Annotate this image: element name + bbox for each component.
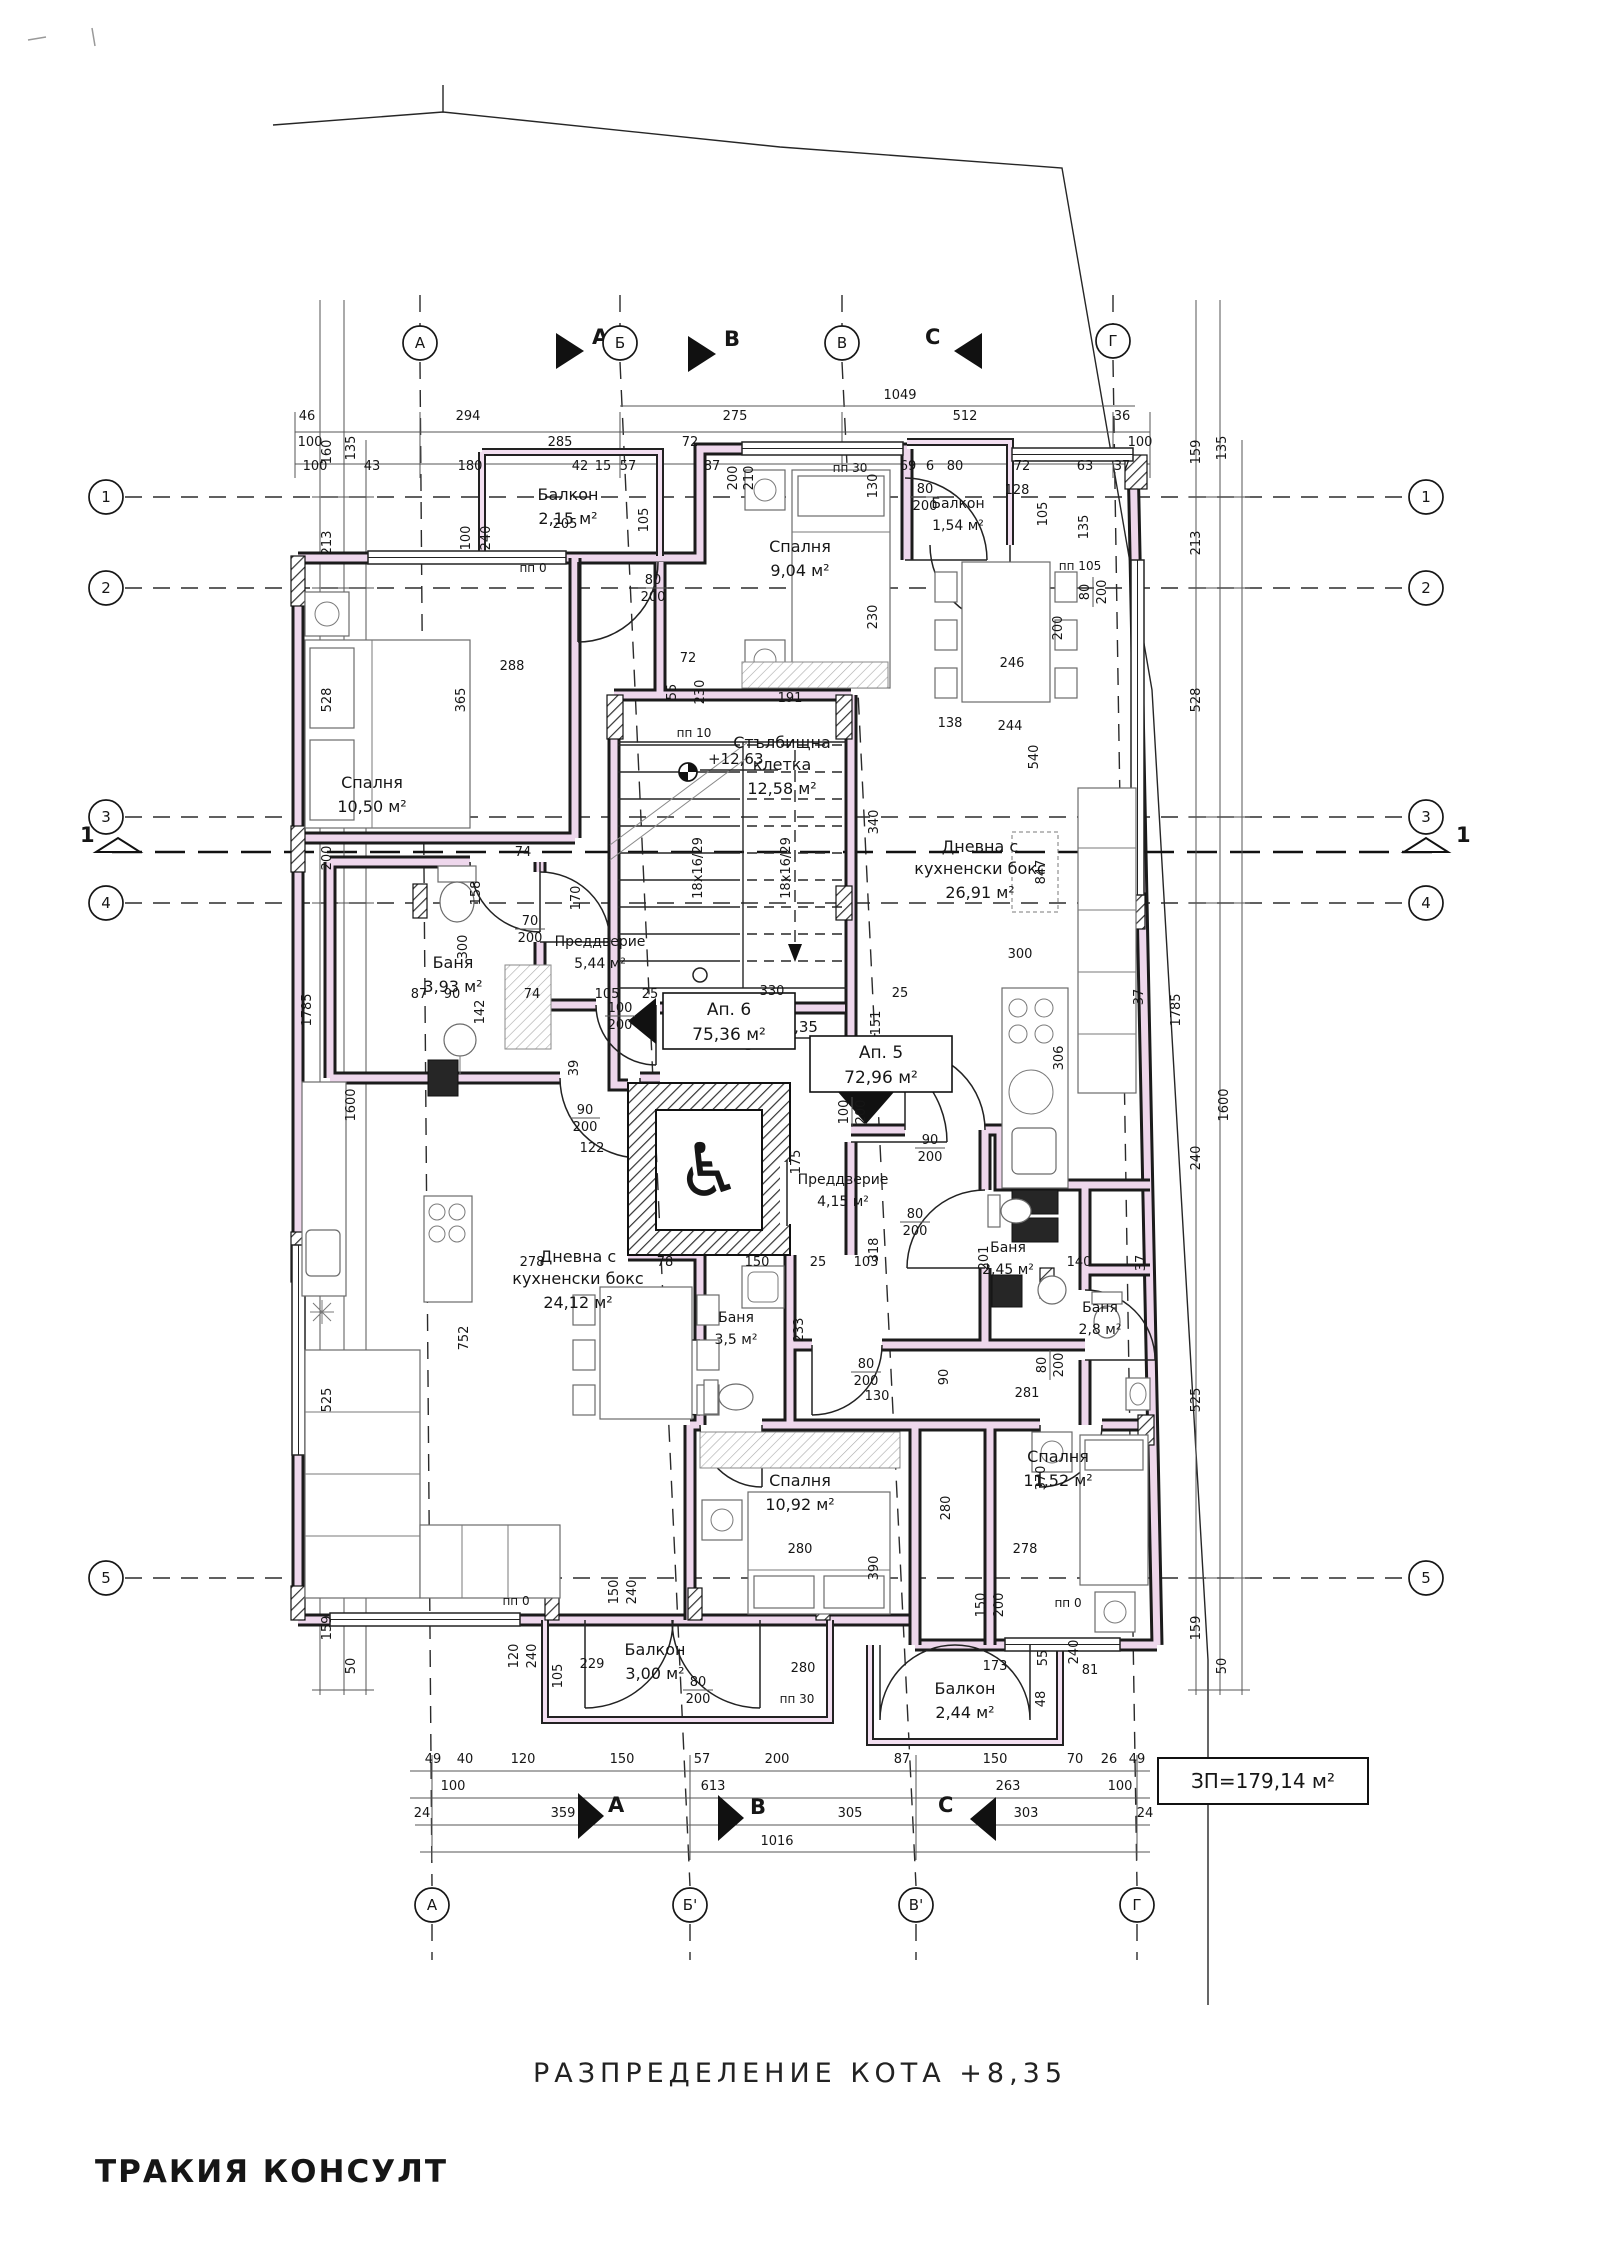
dimension-label: 240	[479, 526, 494, 551]
room-label-bedroom-1050: Спалня	[341, 773, 403, 792]
svg-text:80: 80	[907, 1207, 924, 1222]
svg-text:55: 55	[1036, 1650, 1051, 1667]
dimension-label: 128	[1005, 483, 1030, 498]
kitchen-apartment6	[302, 1082, 472, 1324]
dimension-label: 170	[569, 886, 584, 911]
svg-text:48: 48	[1034, 1691, 1049, 1708]
svg-text:87: 87	[704, 459, 721, 474]
svg-text:10,50 м²: 10,50 м²	[337, 797, 406, 816]
svg-text:78: 78	[657, 1255, 674, 1270]
dimension-label: 74	[515, 845, 532, 860]
svg-text:140: 140	[1067, 1255, 1092, 1270]
svg-text:200: 200	[992, 1593, 1007, 1618]
svg-text:100: 100	[441, 1779, 466, 1794]
dimension-label: 80200	[1078, 577, 1110, 607]
svg-text:1: 1	[101, 488, 111, 506]
dimension-label: 281	[1015, 1386, 1040, 1401]
svg-text:246: 246	[1000, 656, 1025, 671]
dimension-label: 528	[320, 688, 335, 713]
dimension-label: 6	[926, 459, 934, 474]
dimension-label: 50	[344, 1658, 359, 1675]
svg-text:1785: 1785	[1169, 993, 1184, 1026]
svg-text:15: 15	[595, 459, 612, 474]
dimension-label: 305	[838, 1806, 863, 1821]
svg-text:288: 288	[500, 659, 525, 674]
svg-text:25: 25	[810, 1255, 827, 1270]
room-label-balcony-154: Балкон	[931, 496, 984, 512]
room-label-balcony-215: Балкон	[538, 485, 599, 504]
svg-text:200: 200	[903, 1224, 928, 1239]
svg-text:370: 370	[1034, 1466, 1049, 1491]
dimension-label: 525	[1189, 1388, 1204, 1413]
dimension-label: 74	[524, 987, 541, 1002]
svg-text:752: 752	[457, 1326, 472, 1351]
dimension-label: 1049	[883, 388, 916, 403]
dimension-label: 57	[694, 1752, 711, 1767]
dimension-label: 135	[1077, 515, 1092, 540]
dimension-label: 285	[548, 435, 573, 450]
svg-text:200: 200	[1052, 1353, 1067, 1378]
dimension-label: 1600	[344, 1088, 359, 1121]
svg-text:200: 200	[854, 1100, 869, 1125]
svg-text:150: 150	[610, 1752, 635, 1767]
dimension-label: 49	[1129, 1752, 1146, 1767]
svg-text:18x16/29: 18x16/29	[691, 837, 706, 899]
section-b-bottom-label: B	[750, 1795, 766, 1819]
company-logo: ТРАКИЯ КОНСУЛТ	[95, 2154, 448, 2190]
svg-text:200: 200	[854, 1374, 879, 1389]
svg-text:пп 10: пп 10	[677, 726, 712, 740]
dimension-label: 230	[693, 680, 708, 705]
svg-text:80: 80	[1035, 1357, 1050, 1374]
svg-text:150: 150	[983, 1752, 1008, 1767]
svg-text:18x16/29: 18x16/29	[779, 837, 794, 899]
svg-text:100: 100	[1128, 435, 1153, 450]
svg-text:24: 24	[414, 1806, 431, 1821]
svg-text:80: 80	[917, 482, 934, 497]
svg-text:2: 2	[101, 579, 111, 597]
svg-text:100: 100	[459, 526, 474, 551]
svg-text:294: 294	[456, 409, 481, 424]
axis-marker-left-1: 1	[89, 480, 123, 514]
dimension-label: 87	[894, 1752, 911, 1767]
dimension-label: 229	[580, 1657, 605, 1672]
dimension-label: 525	[320, 1388, 335, 1413]
svg-text:847: 847	[1034, 860, 1049, 885]
apartment6-area: 75,36 м²	[692, 1025, 766, 1045]
dimension-label: 365	[454, 688, 469, 713]
room-label-bedroom-1152: Спалня	[1027, 1447, 1089, 1466]
svg-text:26,91 м²: 26,91 м²	[945, 883, 1014, 902]
dimension-label: 1785	[300, 993, 315, 1026]
dimension-label: 340	[867, 810, 882, 835]
dimension-label: 120	[511, 1752, 536, 1767]
svg-text:285: 285	[548, 435, 573, 450]
svg-text:87: 87	[411, 987, 428, 1002]
dimension-label: 613	[701, 1779, 726, 1794]
dimension-label: 158	[469, 881, 484, 906]
svg-text:72: 72	[682, 435, 699, 450]
svg-text:130: 130	[866, 474, 881, 499]
svg-text:130: 130	[865, 1389, 890, 1404]
svg-text:240: 240	[1189, 1146, 1204, 1171]
dimension-label: 300	[1008, 947, 1033, 962]
dimension-label: 90200	[570, 1103, 600, 1135]
dimension-label: 55	[665, 684, 680, 701]
dimension-label: 18x16/29	[691, 837, 706, 899]
svg-text:230: 230	[693, 680, 708, 705]
bed-bedroom-1092	[700, 1432, 900, 1614]
svg-text:525: 525	[1189, 1388, 1204, 1413]
room-label-vestibule-544: Преддверие	[555, 934, 646, 950]
svg-text:105: 105	[637, 508, 652, 533]
dimension-label: 122	[580, 1141, 605, 1156]
svg-text:4: 4	[101, 894, 111, 912]
dimension-label: 120	[507, 1644, 522, 1669]
svg-text:240: 240	[525, 1644, 540, 1669]
room-label-stairwell: Стълбищна	[733, 733, 831, 752]
svg-text:36: 36	[1114, 409, 1131, 424]
svg-text:50: 50	[344, 1658, 359, 1675]
svg-text:512: 512	[953, 409, 978, 424]
svg-text:150: 150	[974, 1593, 989, 1618]
svg-text:2,8 м²: 2,8 м²	[1079, 1322, 1122, 1338]
dimension-label: 173	[983, 1659, 1008, 1674]
dimension-label: 280	[791, 1661, 816, 1676]
dimension-label: 390	[867, 1556, 882, 1581]
svg-text:1049: 1049	[883, 388, 916, 403]
svg-text:128: 128	[1005, 483, 1030, 498]
dimension-label: 210	[742, 466, 757, 491]
dimension-label: пп 0	[502, 1594, 529, 1608]
dimension-label: 81	[1082, 1663, 1099, 1678]
dimension-label: 49	[425, 1752, 442, 1767]
svg-text:213: 213	[320, 531, 335, 556]
dimension-label: 150	[983, 1752, 1008, 1767]
dimension-label: 135	[1215, 436, 1230, 461]
section-c-top-label: C	[925, 325, 940, 349]
svg-text:120: 120	[507, 1644, 522, 1669]
svg-text:281: 281	[1015, 1386, 1040, 1401]
dimension-label: 63	[1077, 459, 1094, 474]
svg-text:3: 3	[101, 808, 111, 826]
svg-text:306: 306	[1052, 1046, 1067, 1071]
svg-text:305: 305	[838, 1806, 863, 1821]
svg-text:100: 100	[608, 1001, 633, 1016]
svg-text:В: В	[837, 334, 847, 352]
svg-text:135: 135	[1215, 436, 1230, 461]
dimension-label: 370	[1034, 1466, 1049, 1491]
dimension-label: 48	[1034, 1691, 1049, 1708]
svg-text:90: 90	[444, 987, 461, 1002]
svg-text:1: 1	[1421, 488, 1431, 506]
dimension-label: пп 30	[833, 461, 868, 475]
svg-text:525: 525	[320, 1388, 335, 1413]
dimension-label: 105	[595, 987, 620, 1002]
dimension-label: 512	[953, 409, 978, 424]
dimension-label: 213	[320, 531, 335, 556]
dimension-label: 105	[551, 1664, 566, 1689]
axis-marker-top-Г: Г	[1096, 324, 1130, 358]
dimension-label: 240	[1067, 1640, 1082, 1665]
svg-text:160: 160	[320, 440, 335, 465]
dimension-label: 230	[866, 605, 881, 630]
section-a-bottom-label: A	[608, 1793, 625, 1817]
dimension-label: 100	[1128, 435, 1153, 450]
dimension-label: 105	[1036, 502, 1051, 527]
svg-text:10,92 м²: 10,92 м²	[765, 1495, 834, 1514]
dimension-label: 37	[1132, 989, 1147, 1006]
svg-text:1600: 1600	[344, 1088, 359, 1121]
svg-text:318: 318	[867, 1238, 882, 1263]
svg-text:280: 280	[791, 1661, 816, 1676]
axis-marker-bottom-В': В'	[899, 1888, 933, 1922]
dimension-label: 90	[937, 1369, 952, 1386]
svg-text:81: 81	[1082, 1663, 1099, 1678]
axis-marker-right-4: 4	[1409, 886, 1443, 920]
svg-text:263: 263	[996, 1779, 1021, 1794]
svg-text:200: 200	[1095, 580, 1110, 605]
dimension-label: 105	[637, 508, 652, 533]
svg-text:180: 180	[458, 459, 483, 474]
dimension-label: 135	[344, 436, 359, 461]
svg-text:25: 25	[642, 987, 659, 1002]
svg-text:135: 135	[344, 436, 359, 461]
svg-text:200: 200	[686, 1692, 711, 1707]
svg-text:9,04 м²: 9,04 м²	[770, 561, 829, 580]
svg-text:1600: 1600	[1217, 1088, 1232, 1121]
dimension-label: 246	[1000, 656, 1025, 671]
apartment5-label: Ап. 5	[859, 1043, 903, 1063]
dimension-label: 159	[1189, 440, 1204, 465]
axis-marker-top-Б: Б	[603, 326, 637, 360]
svg-text:151: 151	[869, 1011, 884, 1036]
svg-text:пп 0: пп 0	[519, 561, 546, 575]
svg-text:200: 200	[913, 499, 938, 514]
svg-text:40: 40	[457, 1752, 474, 1767]
dimension-label: 138	[938, 716, 963, 731]
dimension-label: 140	[1067, 1255, 1092, 1270]
svg-text:80: 80	[645, 573, 662, 588]
svg-text:191: 191	[778, 691, 803, 706]
svg-text:303: 303	[1014, 1806, 1039, 1821]
dimension-label: 200	[726, 466, 741, 491]
dimension-label: 1600	[1217, 1088, 1232, 1121]
dimension-label: 55	[1036, 1650, 1051, 1667]
dimension-label: 1016	[760, 1834, 793, 1849]
dimension-label: 244	[998, 719, 1023, 734]
dimension-label: 288	[500, 659, 525, 674]
svg-text:Г: Г	[1132, 1896, 1141, 1914]
svg-text:Б: Б	[615, 334, 625, 352]
svg-text:37: 37	[1132, 989, 1147, 1006]
svg-text:105: 105	[551, 1664, 566, 1689]
dimension-label: 303	[1014, 1806, 1039, 1821]
dimension-label: 294	[456, 409, 481, 424]
room-label-bedroom-904: Спалня	[769, 537, 831, 556]
svg-text:69: 69	[900, 459, 917, 474]
svg-text:26: 26	[1101, 1752, 1118, 1767]
dimension-label: 72	[1014, 459, 1031, 474]
svg-text:205: 205	[553, 517, 578, 532]
axis-marker-top-В: В	[825, 326, 859, 360]
svg-text:359: 359	[551, 1806, 576, 1821]
dimension-label: 25	[642, 987, 659, 1002]
svg-text:233: 233	[792, 1318, 807, 1343]
drawing-title: РАЗПРЕДЕЛЕНИЕ КОТА +8,35	[533, 2058, 1067, 2089]
dimension-label: 72	[682, 435, 699, 450]
dimension-label: 24	[414, 1806, 431, 1821]
svg-text:В': В'	[909, 1896, 923, 1914]
room-label-bath-35: Баня	[718, 1310, 754, 1326]
level-mark-stair	[679, 763, 697, 781]
section-b-top-label: B	[724, 327, 740, 351]
svg-text:200: 200	[918, 1150, 943, 1165]
axis-marker-bottom-А: А	[415, 1888, 449, 1922]
svg-text:Б': Б'	[683, 1896, 697, 1914]
axis-marker-bottom-Г: Г	[1120, 1888, 1154, 1922]
svg-text:200: 200	[1051, 616, 1066, 641]
area-badge-text: ЗП=179,14 м²	[1191, 1769, 1335, 1793]
svg-text:340: 340	[867, 810, 882, 835]
dimension-label: 42	[572, 459, 589, 474]
svg-text:244: 244	[998, 719, 1023, 734]
svg-text:175: 175	[789, 1150, 804, 1175]
dimension-label: пп 105	[1059, 559, 1101, 573]
dimension-label: 200	[1051, 616, 1066, 641]
svg-text:200: 200	[641, 590, 666, 605]
svg-text:170: 170	[569, 886, 584, 911]
svg-text:70: 70	[1067, 1752, 1084, 1767]
svg-text:70: 70	[522, 914, 539, 929]
svg-text:528: 528	[320, 688, 335, 713]
drawing-sheet: ♿	[0, 0, 1600, 2263]
svg-text:105: 105	[1036, 502, 1051, 527]
svg-text:330: 330	[760, 984, 785, 999]
room-label-bath-28: Баня	[1082, 1300, 1118, 1316]
svg-text:кухненски бокс: кухненски бокс	[914, 859, 1045, 878]
svg-text:90: 90	[922, 1133, 939, 1148]
svg-text:49: 49	[1129, 1752, 1146, 1767]
dimension-label: 100	[459, 526, 474, 551]
dimension-label: 278	[1013, 1542, 1038, 1557]
svg-text:25: 25	[892, 986, 909, 1001]
wheelchair-icon: ♿	[676, 1128, 742, 1214]
svg-text:пп 0: пп 0	[502, 1594, 529, 1608]
svg-text:300: 300	[456, 935, 471, 960]
axis-marker-right-3: 3	[1409, 800, 1443, 834]
svg-text:90: 90	[937, 1369, 952, 1386]
dimension-label: 39	[567, 1060, 582, 1077]
svg-text:158: 158	[469, 881, 484, 906]
dimension-label: 57	[620, 459, 637, 474]
room-label-vestibule-415: Преддверие	[798, 1172, 889, 1188]
svg-text:200: 200	[608, 1018, 633, 1033]
svg-text:24: 24	[1137, 1806, 1154, 1821]
svg-text:57: 57	[694, 1752, 711, 1767]
dimension-label: 69	[900, 459, 917, 474]
axis-marker-right-5: 5	[1409, 1561, 1443, 1595]
dimension-label: 200	[992, 1593, 1007, 1618]
dimension-label: 72	[680, 651, 697, 666]
svg-text:230: 230	[866, 605, 881, 630]
svg-text:5: 5	[101, 1569, 111, 1587]
dimension-label: 36	[1114, 409, 1131, 424]
svg-text:5: 5	[1421, 1569, 1431, 1587]
axis-marker-right-1: 1	[1409, 480, 1443, 514]
svg-text:120: 120	[511, 1752, 536, 1767]
svg-text:кухненски бокс: кухненски бокс	[512, 1269, 643, 1288]
sheet-corner-marks	[28, 28, 95, 46]
svg-text:1785: 1785	[300, 993, 315, 1026]
svg-text:90: 90	[577, 1103, 594, 1118]
room-label-living-2412: Дневна с	[540, 1247, 616, 1266]
dimension-label: 150	[745, 1255, 770, 1270]
svg-text:37: 37	[1134, 1255, 1149, 1272]
dimension-label: 151	[869, 1011, 884, 1036]
dimension-label: 46	[299, 409, 316, 424]
dimension-label: 87	[411, 987, 428, 1002]
dimension-label: 90	[444, 987, 461, 1002]
svg-text:39: 39	[567, 1060, 582, 1077]
svg-text:80: 80	[858, 1357, 875, 1372]
svg-text:365: 365	[454, 688, 469, 713]
dimension-label: 26	[1101, 1752, 1118, 1767]
svg-text:клетка: клетка	[753, 755, 812, 774]
axis-marker-bottom-Б': Б'	[673, 1888, 707, 1922]
dimension-label: 80	[947, 459, 964, 474]
svg-text:57: 57	[620, 459, 637, 474]
dimension-label: 213	[1189, 531, 1204, 556]
dimension-label: 306	[1052, 1046, 1067, 1071]
svg-text:135: 135	[1077, 515, 1092, 540]
svg-text:240: 240	[625, 1580, 640, 1605]
dimension-label: 1785	[1169, 993, 1184, 1026]
svg-text:72: 72	[680, 651, 697, 666]
svg-text:229: 229	[580, 1657, 605, 1672]
svg-text:159: 159	[320, 1616, 335, 1641]
dimension-label: 205	[553, 517, 578, 532]
svg-text:300: 300	[1008, 947, 1033, 962]
dimension-label: 275	[723, 409, 748, 424]
dimension-label: 263	[996, 1779, 1021, 1794]
dimension-label: 752	[457, 1326, 472, 1351]
svg-text:2: 2	[1421, 579, 1431, 597]
dimension-label: 87	[704, 459, 721, 474]
dimension-label: 240	[625, 1580, 640, 1605]
svg-text:42: 42	[572, 459, 589, 474]
dimension-label: 191	[778, 691, 803, 706]
svg-text:3,00 м²: 3,00 м²	[625, 1664, 684, 1683]
svg-text:540: 540	[1027, 745, 1042, 770]
svg-text:122: 122	[580, 1141, 605, 1156]
dimension-label: 175	[789, 1150, 804, 1175]
svg-text:12,58 м²: 12,58 м²	[747, 779, 816, 798]
dimension-label: 159	[320, 1616, 335, 1641]
svg-text:200: 200	[518, 931, 543, 946]
svg-text:72: 72	[1014, 459, 1031, 474]
dimension-label: 24	[1137, 1806, 1154, 1821]
svg-text:280: 280	[939, 1496, 954, 1521]
dimension-label: 37	[1114, 459, 1131, 474]
svg-text:159: 159	[1189, 1616, 1204, 1641]
svg-text:280: 280	[788, 1542, 813, 1557]
svg-text:1,54 м²: 1,54 м²	[932, 518, 984, 534]
svg-text:100: 100	[837, 1100, 852, 1125]
svg-text:50: 50	[1215, 1658, 1230, 1675]
dimension-label: 160	[320, 440, 335, 465]
dimension-label: пп 0	[1054, 1596, 1081, 1610]
